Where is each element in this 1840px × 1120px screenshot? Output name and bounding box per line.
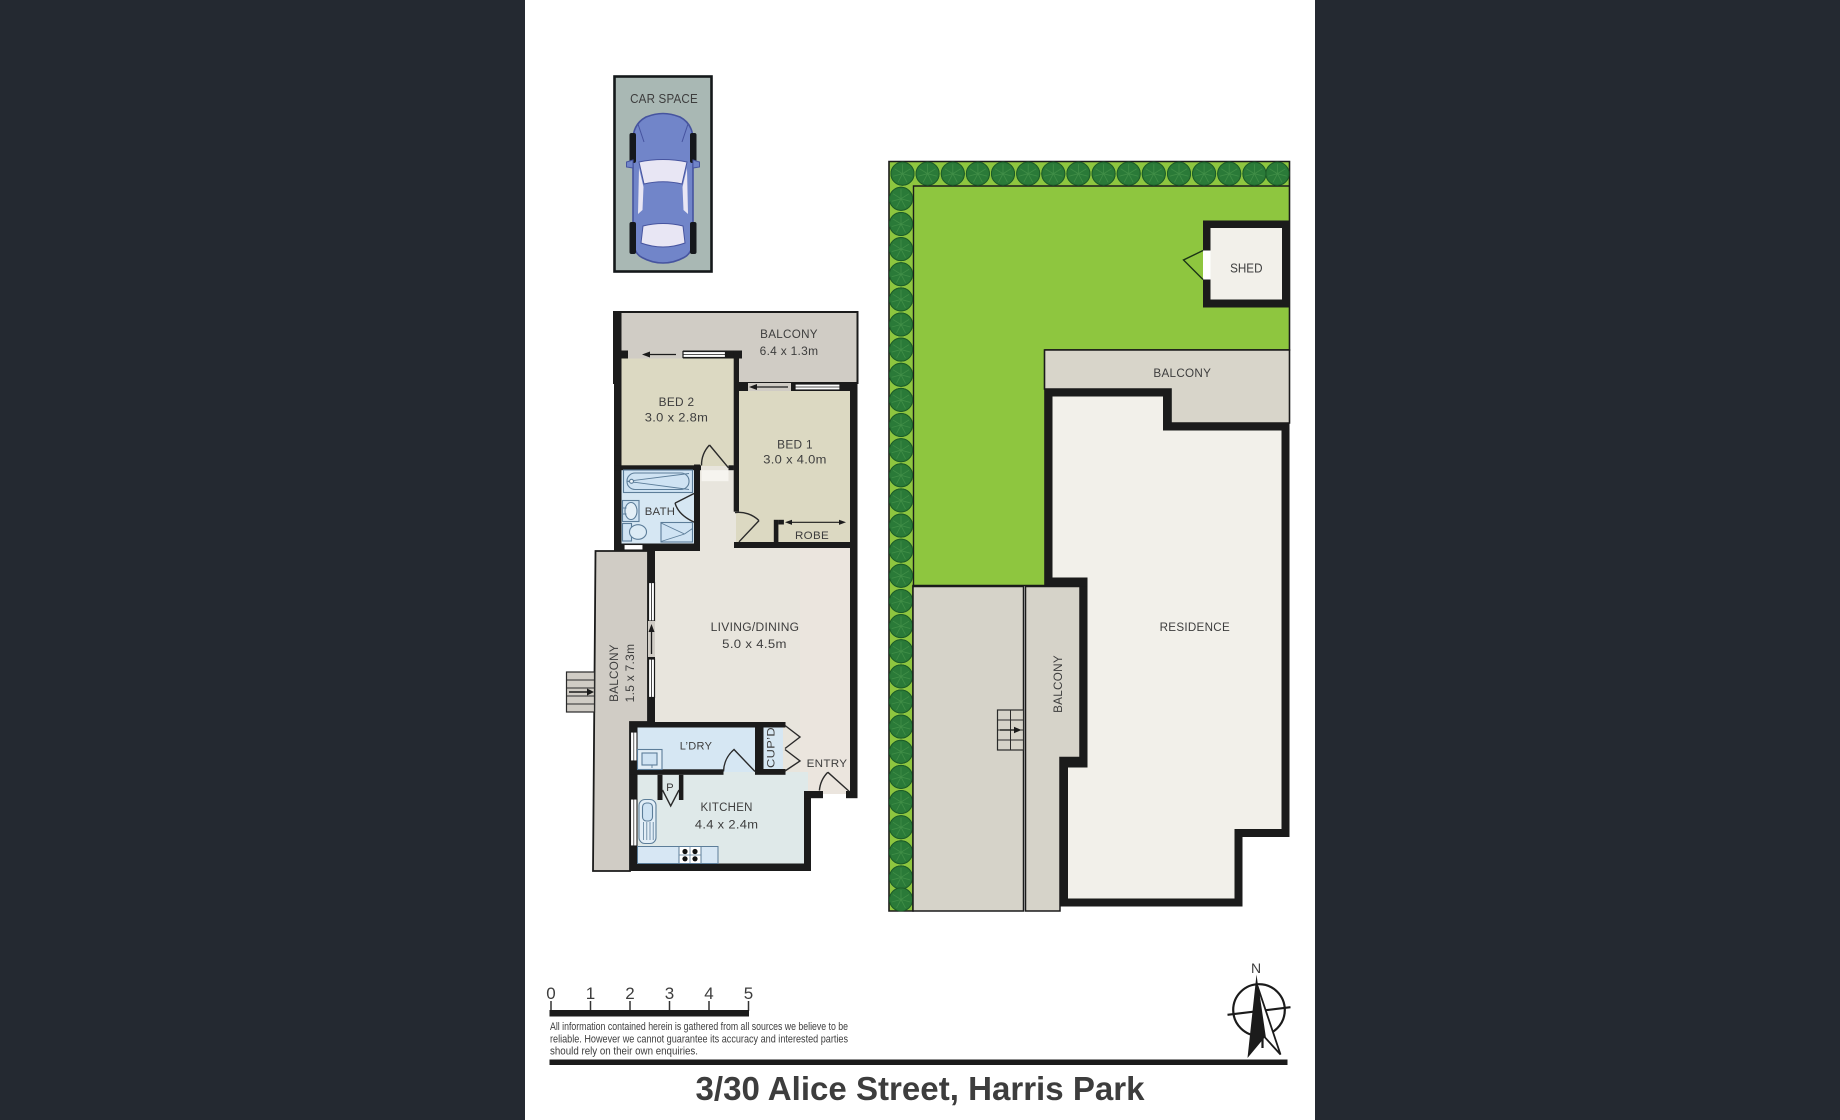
svg-text:LIVING/DINING: LIVING/DINING — [711, 620, 800, 634]
svg-text:3.0 x 2.8m: 3.0 x 2.8m — [645, 411, 709, 425]
svg-text:BALCONY: BALCONY — [760, 327, 818, 341]
svg-text:reliable. However we cannot gu: reliable. However we cannot guarantee it… — [550, 1033, 848, 1045]
svg-text:RESIDENCE: RESIDENCE — [1160, 620, 1230, 634]
svg-text:should rely on their own enqui: should rely on their own enquiries. — [550, 1046, 698, 1058]
svg-text:1: 1 — [586, 984, 595, 1003]
svg-text:3.0 x 4.0m: 3.0 x 4.0m — [763, 453, 827, 467]
svg-text:BALCONY: BALCONY — [1153, 366, 1211, 380]
svg-text:ENTRY: ENTRY — [807, 758, 848, 770]
svg-text:SHED: SHED — [1230, 262, 1262, 276]
svg-text:0: 0 — [546, 984, 555, 1003]
svg-text:KITCHEN: KITCHEN — [700, 800, 752, 814]
svg-text:BATH: BATH — [645, 506, 676, 518]
svg-text:BED 2: BED 2 — [659, 395, 695, 409]
svg-text:6.4 x 1.3m: 6.4 x 1.3m — [760, 344, 819, 358]
svg-text:4.4 x 2.4m: 4.4 x 2.4m — [695, 818, 759, 832]
svg-text:5: 5 — [744, 984, 753, 1003]
svg-text:4: 4 — [704, 984, 713, 1003]
svg-text:BED 1: BED 1 — [777, 438, 813, 452]
svg-text:N: N — [1251, 960, 1261, 976]
svg-text:CUP’D: CUP’D — [766, 727, 778, 768]
svg-text:P: P — [666, 782, 674, 794]
svg-text:2: 2 — [625, 984, 634, 1003]
svg-text:3/30 Alice Street, Harris Park: 3/30 Alice Street, Harris Park — [696, 1071, 1145, 1108]
svg-text:All information contained here: All information contained herein is gath… — [550, 1021, 848, 1033]
svg-text:3: 3 — [665, 984, 674, 1003]
svg-text:L’DRY: L’DRY — [680, 741, 713, 753]
svg-text:BALCONY: BALCONY — [607, 644, 621, 702]
svg-text:ROBE: ROBE — [795, 530, 829, 542]
svg-text:5.0 x 4.5m: 5.0 x 4.5m — [722, 637, 787, 651]
svg-text:BALCONY: BALCONY — [1051, 655, 1065, 713]
svg-text:CAR SPACE: CAR SPACE — [630, 91, 698, 106]
svg-text:1.5 x 7.3m: 1.5 x 7.3m — [623, 644, 637, 703]
